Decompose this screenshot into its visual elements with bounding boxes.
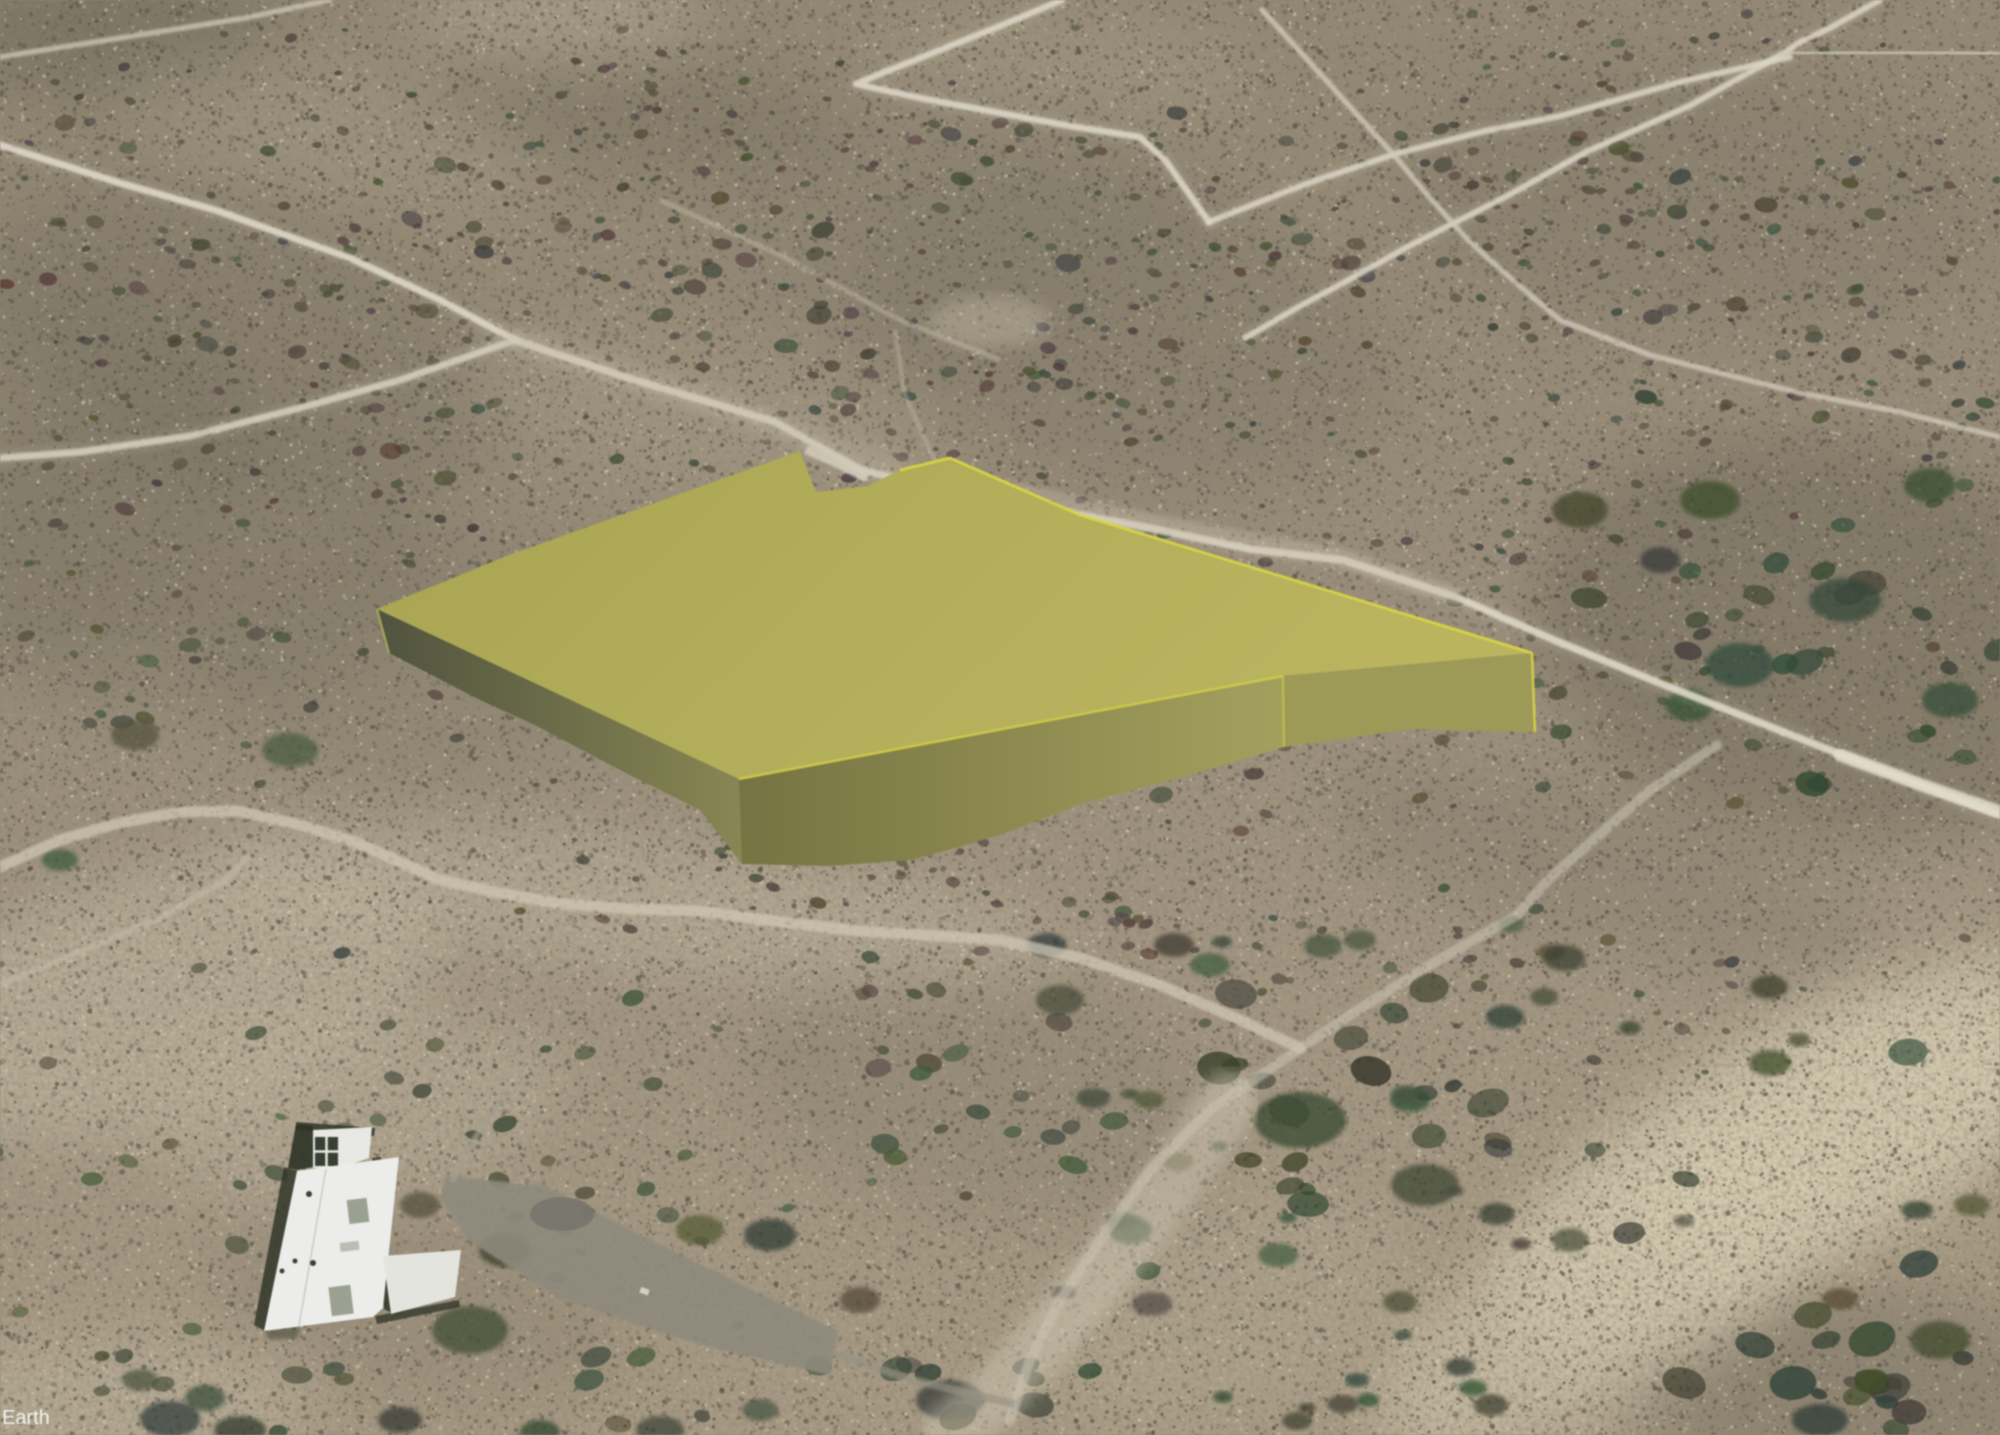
svg-text:Earth: Earth xyxy=(2,1407,50,1429)
